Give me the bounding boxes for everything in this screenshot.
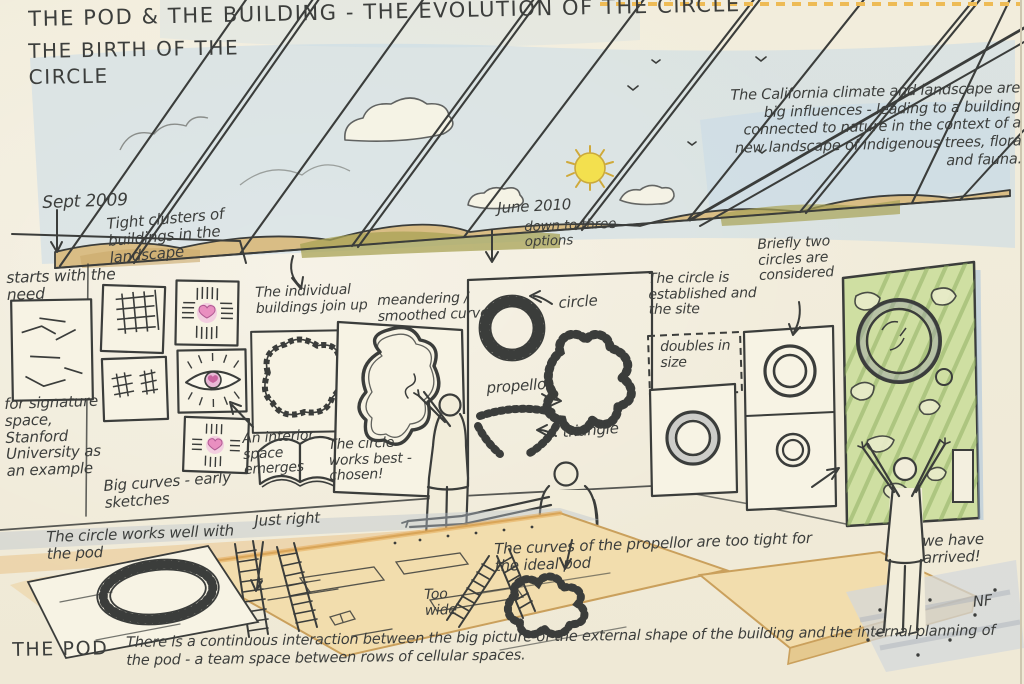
label-circle-works-best: The circle works best - chosen!	[328, 434, 440, 485]
label-starts-with-need: starts with the need	[6, 266, 119, 305]
label-three-options: down to three options	[524, 217, 617, 250]
label-signature-space: for signature space, Stanford University…	[4, 392, 121, 480]
sketch-canvas: THE POD & THE BUILDING - THE EVOLUTION O…	[0, 0, 1024, 684]
label-june-2010: June 2010	[497, 196, 572, 217]
label-the-pod: THE POD	[12, 636, 109, 662]
label-sept-2009: Sept 2009	[42, 191, 128, 213]
note-california: The California climate and landscape are…	[726, 80, 1022, 176]
label-doubles-in-size: doubles in size	[660, 339, 733, 372]
label-interior-space: An interior space emerges	[242, 427, 334, 479]
label-two-circles: Briefly two circles are considered	[757, 232, 879, 285]
artist-signature: NF	[972, 592, 993, 611]
label-circle: circle	[558, 292, 598, 311]
label-circle-works-pod: The circle works well with the pod	[46, 522, 242, 562]
label-meandering: meandering / smoothed curves	[377, 290, 496, 325]
label-we-have-arrived: we have arrived!	[922, 530, 1018, 567]
page-subtitle: THE BIRTH OF THE CIRCLE	[28, 34, 284, 90]
label-too-wide: Too wide	[424, 586, 473, 619]
label-just-right: Just right	[254, 510, 320, 530]
label-buildings-join: The individual buildings join up	[255, 282, 368, 317]
propellor-option	[547, 334, 631, 431]
label-circle-established: The circle is established and the site	[648, 270, 771, 319]
